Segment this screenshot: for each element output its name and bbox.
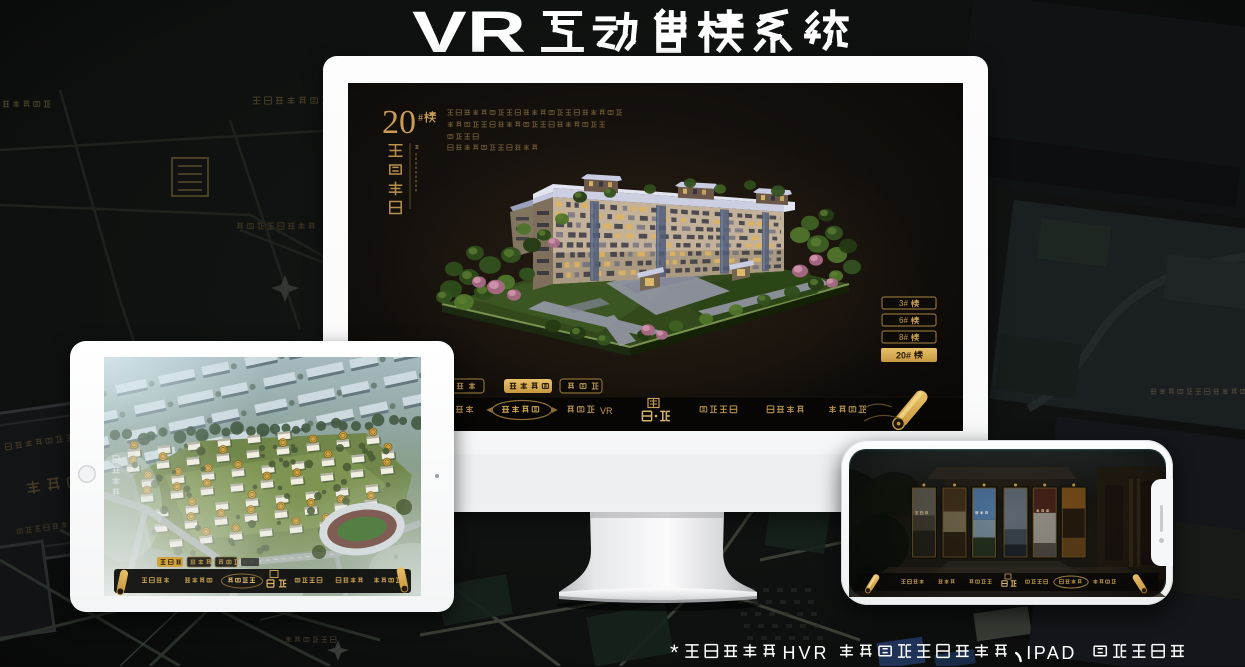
svg-text:HVR: HVR	[783, 643, 830, 663]
svg-text:6#: 6#	[899, 316, 908, 325]
svg-text:VR: VR	[600, 406, 613, 416]
svg-text:20#: 20#	[896, 351, 911, 361]
svg-text:3#: 3#	[899, 299, 908, 308]
svg-text:8#: 8#	[899, 333, 908, 342]
svg-text:IPAD: IPAD	[1026, 643, 1077, 663]
svg-text:20: 20	[382, 104, 416, 141]
svg-text:*: *	[670, 640, 679, 665]
svg-text:VR: VR	[412, 2, 526, 62]
svg-text:#: #	[418, 113, 423, 124]
